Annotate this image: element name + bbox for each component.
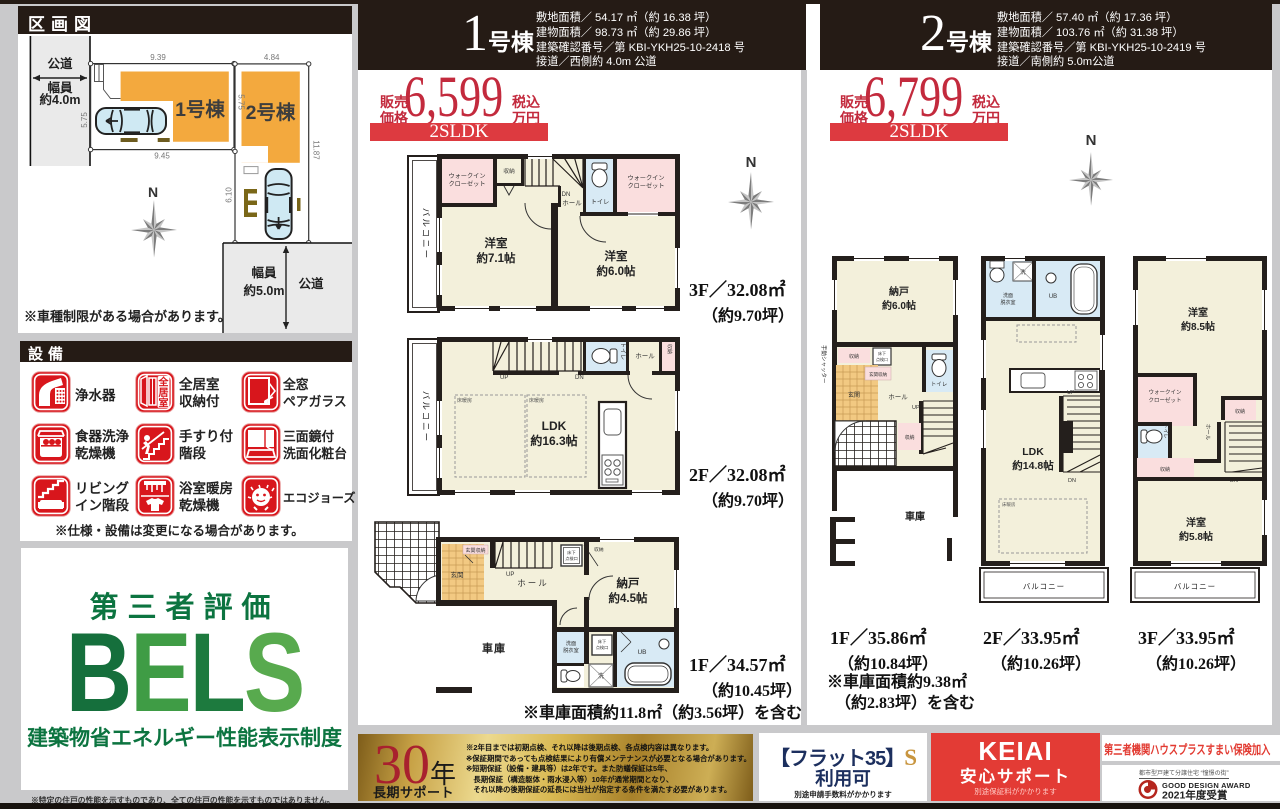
svg-text:トイレ: トイレ <box>1162 423 1168 438</box>
svg-text:1号棟: 1号棟 <box>175 98 225 121</box>
svg-text:玄関: 玄関 <box>451 570 464 579</box>
svg-text:クローゼット: クローゼット <box>627 182 664 190</box>
svg-text:4.84: 4.84 <box>264 53 280 62</box>
svg-text:5.75: 5.75 <box>237 94 246 110</box>
svg-text:バルコニー: バルコニー <box>421 208 431 260</box>
svg-text:床暖房: 床暖房 <box>1002 501 1016 508</box>
svg-text:UB: UB <box>637 649 646 656</box>
svg-text:室: 室 <box>159 397 169 410</box>
svg-text:納戸: 納戸 <box>889 285 909 298</box>
svg-text:ホール: ホール <box>635 352 655 360</box>
svg-text:6.10: 6.10 <box>225 187 234 203</box>
svg-text:LDK: LDK <box>542 419 567 433</box>
svg-text:クローゼット: クローゼット <box>1148 396 1181 404</box>
svg-text:洋室: 洋室 <box>605 249 628 263</box>
svg-text:UP: UP <box>506 572 514 578</box>
svg-text:2021年度受賞: 2021年度受賞 <box>1162 789 1228 801</box>
svg-text:洗面: 洗面 <box>566 639 576 647</box>
svg-text:約5.8帖: 約5.8帖 <box>1179 530 1213 543</box>
svg-text:床下: 床下 <box>598 638 606 645</box>
svg-text:車庫: 車庫 <box>482 641 506 655</box>
svg-text:2号棟: 2号棟 <box>246 101 296 124</box>
svg-text:DN: DN <box>1068 478 1076 484</box>
svg-text:収納: 収納 <box>666 344 673 354</box>
svg-text:約5.0m: 約5.0m <box>244 283 285 298</box>
svg-text:洗: 洗 <box>598 672 604 680</box>
svg-text:約16.3帖: 約16.3帖 <box>530 433 577 448</box>
svg-text:N: N <box>148 184 158 200</box>
svg-text:トイレ: トイレ <box>931 382 948 388</box>
svg-text:手動シャッター: 手動シャッター <box>820 345 828 384</box>
svg-text:UP: UP <box>912 405 920 411</box>
svg-text:収納: 収納 <box>849 353 859 360</box>
svg-text:約6.0帖: 約6.0帖 <box>882 299 916 312</box>
svg-text:収納: 収納 <box>1160 466 1170 473</box>
svg-text:約14.8帖: 約14.8帖 <box>1012 459 1054 472</box>
svg-text:脱衣室: 脱衣室 <box>1000 299 1015 306</box>
svg-text:洋室: 洋室 <box>1188 306 1208 319</box>
svg-text:洗面: 洗面 <box>1003 292 1013 299</box>
svg-text:トイレ: トイレ <box>591 199 610 206</box>
svg-text:公道: 公道 <box>47 56 73 71</box>
svg-text:11.87: 11.87 <box>312 140 321 160</box>
svg-text:UP: UP <box>1067 390 1075 396</box>
svg-text:床下: 床下 <box>878 350 886 356</box>
svg-text:UP: UP <box>500 375 508 381</box>
svg-text:バルコニー: バルコニー <box>1023 582 1065 591</box>
svg-text:床暖房: 床暖房 <box>529 397 544 404</box>
svg-text:点検口: 点検口 <box>596 644 609 651</box>
svg-text:DN: DN <box>575 375 584 381</box>
svg-text:バルコニー: バルコニー <box>421 391 431 443</box>
svg-text:収納: 収納 <box>503 167 515 175</box>
svg-text:公道: 公道 <box>298 276 324 291</box>
svg-text:バルコニー: バルコニー <box>1174 582 1216 591</box>
svg-text:収納: 収納 <box>1235 408 1245 415</box>
svg-text:床下: 床下 <box>567 549 575 556</box>
svg-text:ウォークイン: ウォークイン <box>627 174 664 182</box>
svg-text:車庫: 車庫 <box>905 510 925 523</box>
svg-text:約4.5帖: 約4.5帖 <box>609 591 648 605</box>
svg-text:ウォークイン: ウォークイン <box>448 172 485 180</box>
svg-text:脱衣室: 脱衣室 <box>563 646 579 654</box>
svg-text:LDK: LDK <box>1022 446 1044 458</box>
svg-text:居: 居 <box>159 387 169 399</box>
svg-text:ホール: ホール <box>517 578 549 588</box>
svg-text:点検口: 点検口 <box>876 356 888 362</box>
svg-text:9.39: 9.39 <box>150 53 166 62</box>
svg-text:洋室: 洋室 <box>485 236 508 250</box>
svg-text:N: N <box>1086 132 1097 149</box>
svg-text:クローゼット: クローゼット <box>448 180 485 188</box>
svg-text:洋室: 洋室 <box>1186 516 1206 529</box>
svg-text:収納: 収納 <box>904 434 914 441</box>
svg-text:DN: DN <box>562 192 571 198</box>
svg-text:全: 全 <box>158 376 170 389</box>
svg-text:約6.0帖: 約6.0帖 <box>597 264 636 278</box>
svg-text:床暖房: 床暖房 <box>457 397 472 404</box>
svg-text:9.45: 9.45 <box>154 152 170 161</box>
svg-text:点検口: 点検口 <box>565 555 578 562</box>
svg-text:5.75: 5.75 <box>80 112 89 128</box>
svg-text:玄関収納: 玄関収納 <box>869 371 887 378</box>
svg-text:ウォークイン: ウォークイン <box>1148 388 1182 396</box>
svg-text:UB: UB <box>1049 294 1057 300</box>
svg-text:収納: 収納 <box>594 546 604 553</box>
svg-text:約4.0m: 約4.0m <box>40 92 81 107</box>
svg-text:玄関収納: 玄関収納 <box>465 547 485 554</box>
svg-text:ホール: ホール <box>1204 424 1211 441</box>
svg-text:約8.5帖: 約8.5帖 <box>1181 320 1215 333</box>
svg-text:約7.1帖: 約7.1帖 <box>477 251 516 265</box>
svg-text:ホール: ホール <box>888 393 908 401</box>
svg-text:幅員: 幅員 <box>251 265 277 280</box>
svg-text:トイレ: トイレ <box>619 342 625 360</box>
svg-text:N: N <box>746 154 757 171</box>
svg-text:洗: 洗 <box>1020 268 1026 276</box>
svg-text:納戸: 納戸 <box>617 576 640 590</box>
svg-text:ホール: ホール <box>562 199 582 207</box>
svg-text:玄関: 玄関 <box>848 391 860 399</box>
